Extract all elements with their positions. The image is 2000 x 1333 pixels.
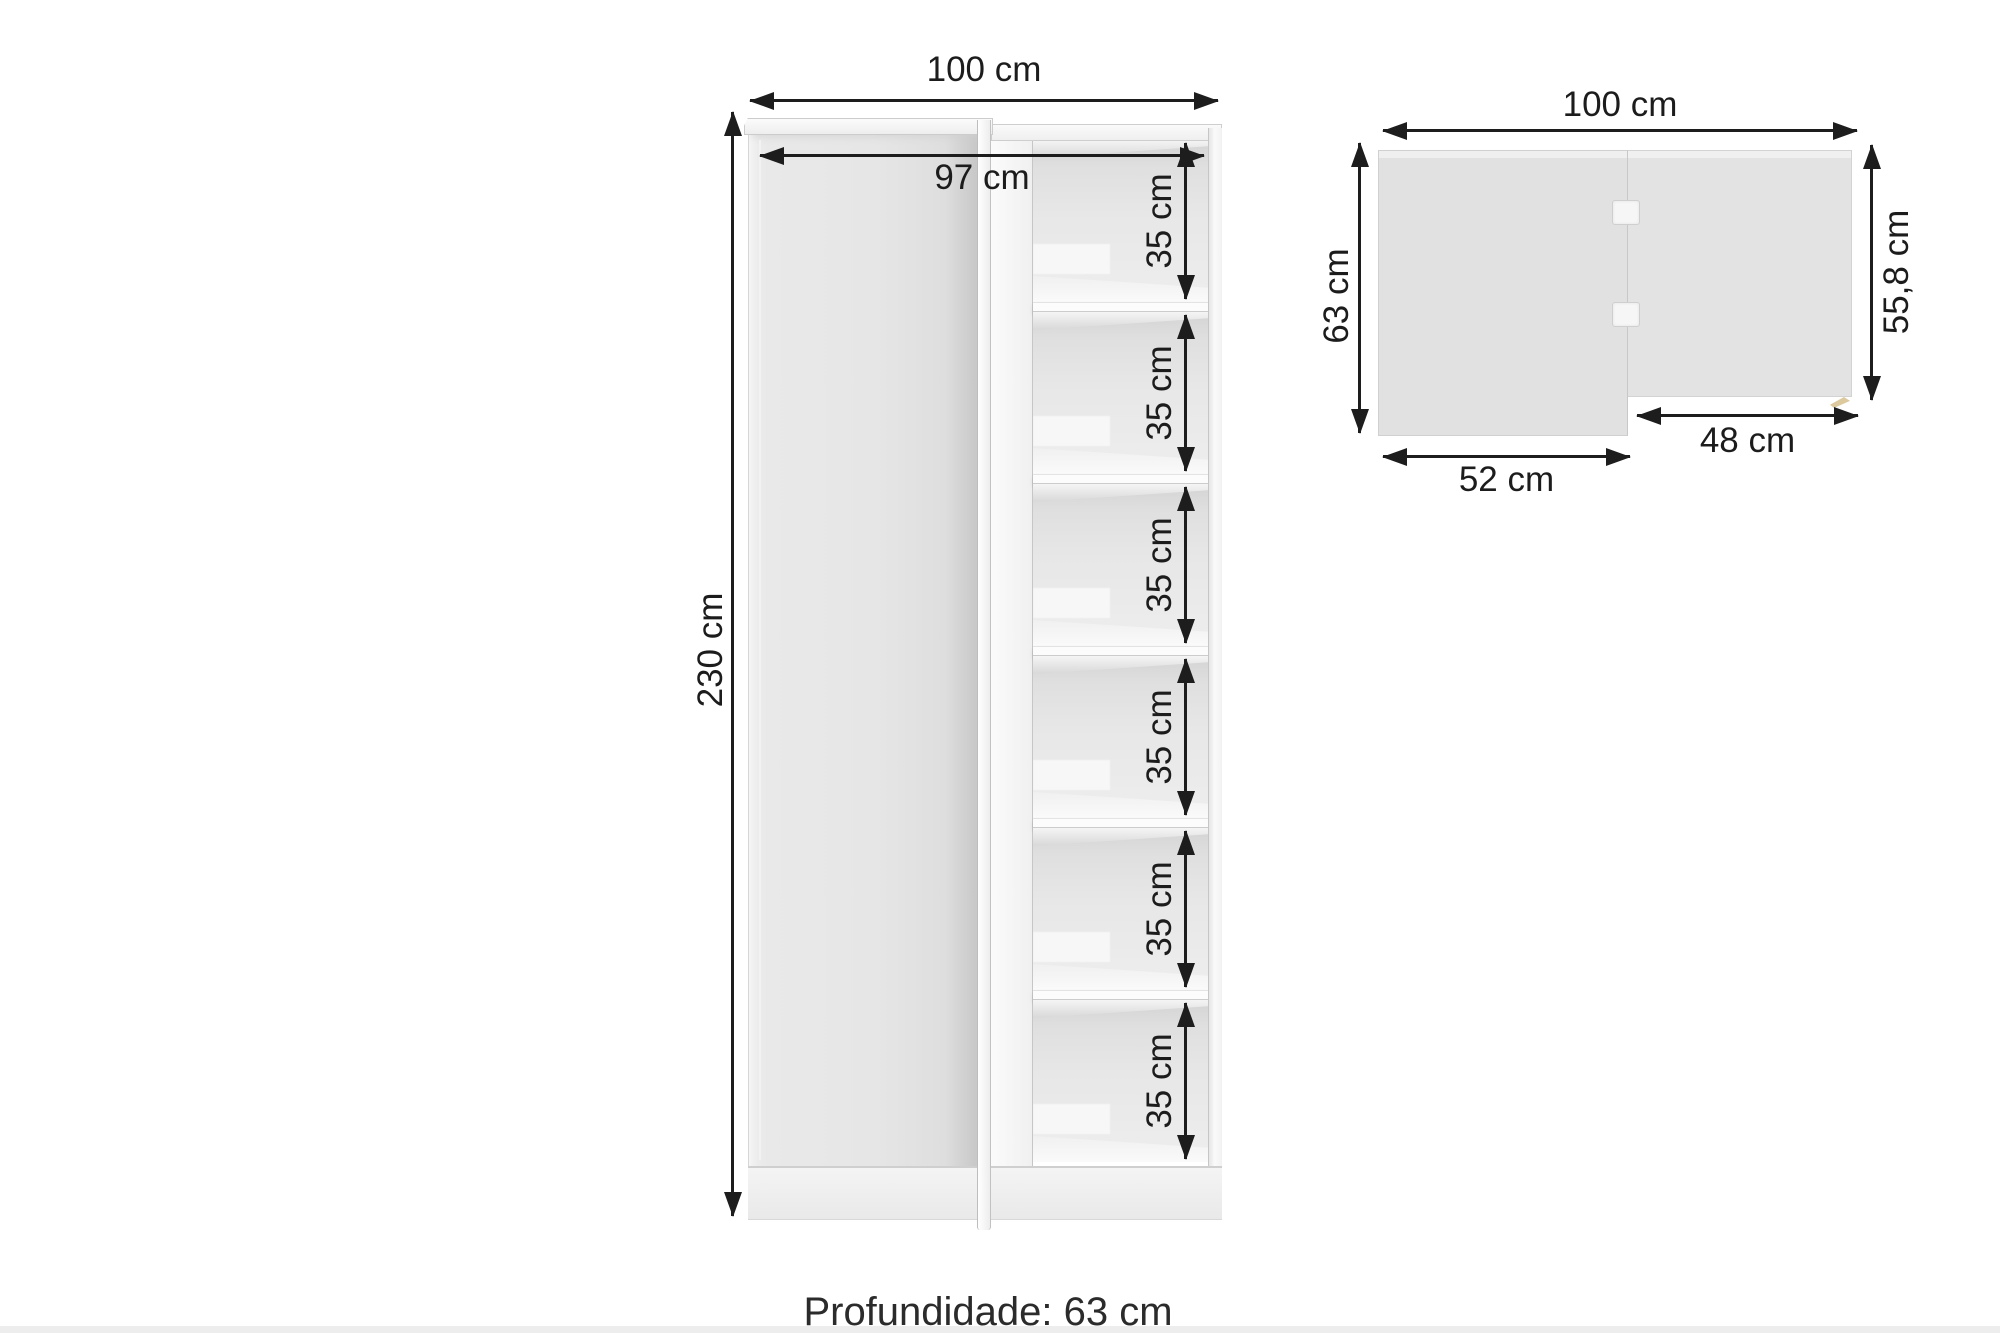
compartment-label: 35 cm — [1142, 161, 1178, 281]
top-left-depth-label: 63 cm — [1317, 216, 1357, 376]
top-left-width-arrow — [1383, 455, 1630, 458]
furniture-dimension-diagram: 100 cm 230 cm 97 cm — [0, 0, 2000, 1333]
front-inner-width-label: 97 cm — [760, 158, 1204, 198]
compartment-label: 35 cm — [1142, 1021, 1178, 1141]
compartment-arrow — [1184, 487, 1187, 643]
top-width-label: 100 cm — [1383, 85, 1857, 125]
compartment-label: 35 cm — [1142, 505, 1178, 625]
front-width-label: 100 cm — [750, 50, 1218, 90]
front-inner-width-arrow — [760, 154, 1204, 157]
compartment-arrow — [1184, 1003, 1187, 1159]
top-view-right-panel — [1628, 150, 1852, 397]
compartment-label: 35 cm — [1142, 677, 1178, 797]
shelf-board — [1033, 302, 1208, 312]
hinge-marker — [1612, 200, 1640, 225]
top-right-width-arrow — [1637, 414, 1858, 417]
center-frame-post — [991, 128, 1033, 1166]
front-height-arrow — [731, 112, 734, 1216]
compartment-arrow — [1184, 659, 1187, 815]
top-right-depth-label: 55,8 cm — [1877, 182, 1917, 362]
top-width-arrow — [1383, 129, 1857, 132]
cabinet-top-board — [991, 124, 1222, 141]
wardrobe-door — [748, 133, 977, 1166]
cabinet-right-wall — [1208, 128, 1222, 1166]
shelf-board — [1033, 990, 1208, 1000]
depth-caption: Profundidade: 63 cm — [700, 1290, 1276, 1333]
shelf-board — [1033, 818, 1208, 828]
shelf-board — [1033, 474, 1208, 484]
door-stile-line — [759, 140, 761, 1160]
door-handle-strip — [977, 120, 991, 1230]
top-right-width-label: 48 cm — [1637, 421, 1858, 461]
compartment-arrow — [1184, 831, 1187, 987]
top-right-depth-arrow — [1870, 145, 1873, 400]
shelf-board — [1033, 646, 1208, 656]
front-width-arrow — [750, 99, 1218, 102]
compartment-arrow — [1184, 315, 1187, 471]
compartment-label: 35 cm — [1142, 333, 1178, 453]
front-height-label: 230 cm — [691, 570, 731, 730]
top-left-depth-arrow — [1358, 143, 1361, 433]
top-left-width-label: 52 cm — [1383, 460, 1630, 500]
compartment-label: 35 cm — [1142, 849, 1178, 969]
top-view-left-panel — [1378, 150, 1628, 436]
hinge-marker — [1612, 302, 1640, 327]
cabinet-crown — [744, 118, 993, 135]
